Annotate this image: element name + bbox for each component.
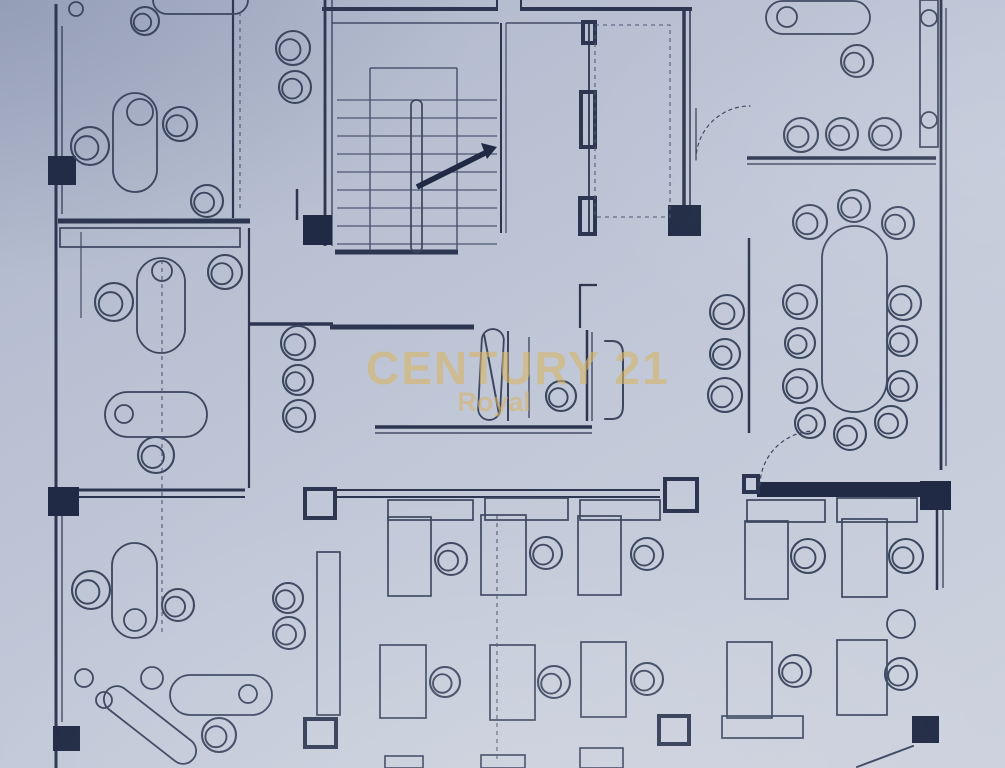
stairs-layer bbox=[337, 68, 497, 252]
floorplan-drawing bbox=[0, 0, 1005, 768]
chairs-layer bbox=[71, 7, 923, 752]
floorplan-photo: CENTURY 21 Royal bbox=[0, 0, 1005, 768]
columns-layer bbox=[48, 22, 951, 751]
